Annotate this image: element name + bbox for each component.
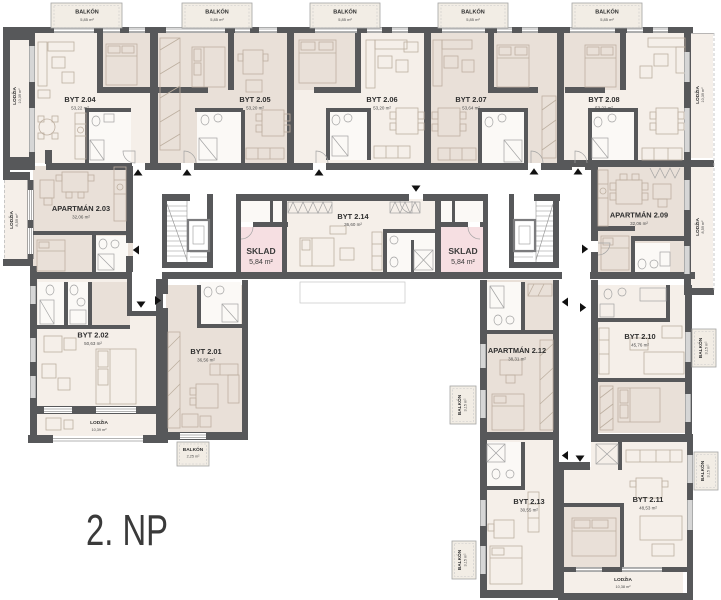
svg-text:BALKÓN: BALKÓN xyxy=(595,8,619,16)
svg-text:48,53 m²: 48,53 m² xyxy=(639,506,657,511)
svg-text:10,39 m²: 10,39 m² xyxy=(92,428,108,432)
svg-text:2. NP: 2. NP xyxy=(86,506,168,555)
svg-text:SKLAD: SKLAD xyxy=(246,246,275,256)
svg-text:32,06 m²: 32,06 m² xyxy=(72,215,90,220)
svg-text:BYT 2.05: BYT 2.05 xyxy=(239,95,270,104)
svg-text:BYT 2.02: BYT 2.02 xyxy=(77,331,108,340)
svg-text:3,15 m²: 3,15 m² xyxy=(464,398,468,412)
svg-text:5,84 m²: 5,84 m² xyxy=(451,259,475,266)
svg-text:BALKÓN: BALKÓN xyxy=(205,8,229,16)
svg-text:32,06 m²: 32,06 m² xyxy=(630,221,648,226)
svg-text:5,84 m²: 5,84 m² xyxy=(249,259,273,266)
svg-text:5,85 m²: 5,85 m² xyxy=(210,17,224,22)
svg-text:3,15 m²: 3,15 m² xyxy=(707,464,711,478)
svg-text:BYT 2.13: BYT 2.13 xyxy=(513,497,544,506)
svg-text:50,63 m²: 50,63 m² xyxy=(84,341,102,346)
svg-text:SKLAD: SKLAD xyxy=(448,246,477,256)
svg-text:53,22 m²: 53,22 m² xyxy=(71,106,89,111)
svg-text:3,15 m²: 3,15 m² xyxy=(705,341,709,355)
svg-text:10,39 m²: 10,39 m² xyxy=(701,87,705,103)
svg-text:36,60 m²: 36,60 m² xyxy=(344,222,362,227)
svg-text:BYT 2.07: BYT 2.07 xyxy=(455,95,486,104)
svg-text:BYT 2.10: BYT 2.10 xyxy=(624,332,655,341)
svg-text:BALKÓN: BALKÓN xyxy=(461,8,485,16)
svg-text:BALKÓN: BALKÓN xyxy=(75,8,99,16)
svg-text:38,31 m²: 38,31 m² xyxy=(508,357,526,362)
svg-text:8,59 m²: 8,59 m² xyxy=(15,213,19,227)
svg-text:5,85 m²: 5,85 m² xyxy=(466,17,480,22)
svg-text:2,25 m²: 2,25 m² xyxy=(187,455,201,459)
svg-text:3,15 m²: 3,15 m² xyxy=(464,553,468,567)
svg-text:5,85 m²: 5,85 m² xyxy=(338,17,352,22)
svg-text:5,85 m²: 5,85 m² xyxy=(80,17,94,22)
svg-text:BYT 2.11: BYT 2.11 xyxy=(633,495,664,504)
svg-text:BYT 2.14: BYT 2.14 xyxy=(337,212,369,221)
svg-text:5,85 m²: 5,85 m² xyxy=(600,17,614,22)
svg-text:10,38 m²: 10,38 m² xyxy=(616,585,632,589)
svg-text:BYT 2.01: BYT 2.01 xyxy=(190,347,221,356)
svg-text:53,20 m²: 53,20 m² xyxy=(373,106,391,111)
svg-text:53,20 m²: 53,20 m² xyxy=(246,106,264,111)
svg-text:BALKÓN: BALKÓN xyxy=(333,8,357,16)
svg-text:36,56 m²: 36,56 m² xyxy=(197,358,215,363)
svg-text:10,39 m²: 10,39 m² xyxy=(18,88,22,104)
svg-text:8,59 m²: 8,59 m² xyxy=(701,220,705,234)
svg-text:BYT 2.06: BYT 2.06 xyxy=(366,95,397,104)
svg-text:APARTMÁN 2.03: APARTMÁN 2.03 xyxy=(52,204,110,213)
svg-text:BYT 2.04: BYT 2.04 xyxy=(64,95,96,104)
svg-text:APARTMÁN 2.09: APARTMÁN 2.09 xyxy=(610,211,668,220)
svg-text:30,55 m²: 30,55 m² xyxy=(520,508,538,513)
svg-text:53,22 m²: 53,22 m² xyxy=(595,106,613,111)
svg-text:53,64 m²: 53,64 m² xyxy=(462,106,480,111)
svg-text:BYT 2.08: BYT 2.08 xyxy=(588,95,619,104)
svg-text:45,76 m²: 45,76 m² xyxy=(631,343,649,348)
svg-text:APARTMÁN 2.12: APARTMÁN 2.12 xyxy=(488,346,546,355)
